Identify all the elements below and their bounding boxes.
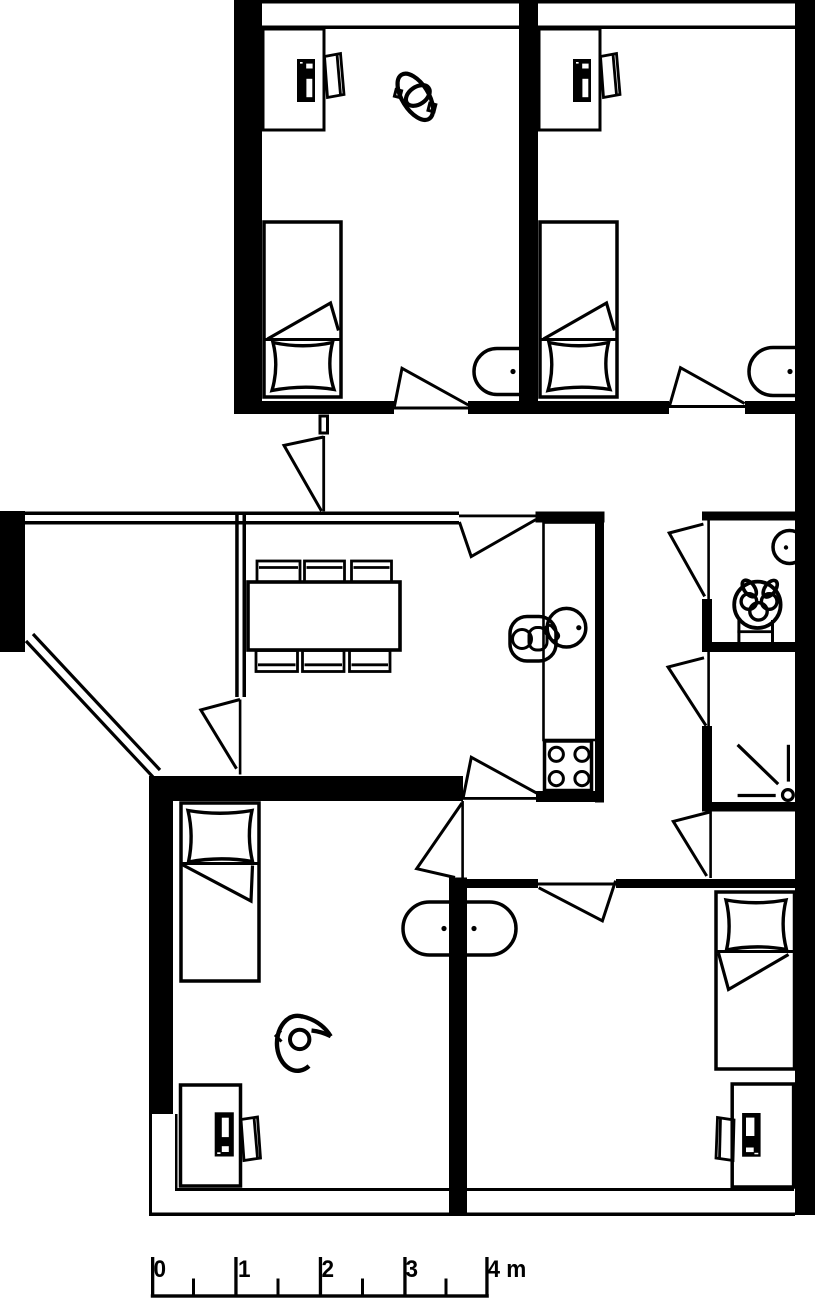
svg-text:2: 2 (322, 1255, 335, 1282)
svg-text:4 m: 4 m (488, 1255, 527, 1282)
svg-text:0: 0 (154, 1255, 167, 1282)
svg-text:3: 3 (406, 1255, 419, 1282)
svg-text:1: 1 (238, 1255, 251, 1282)
